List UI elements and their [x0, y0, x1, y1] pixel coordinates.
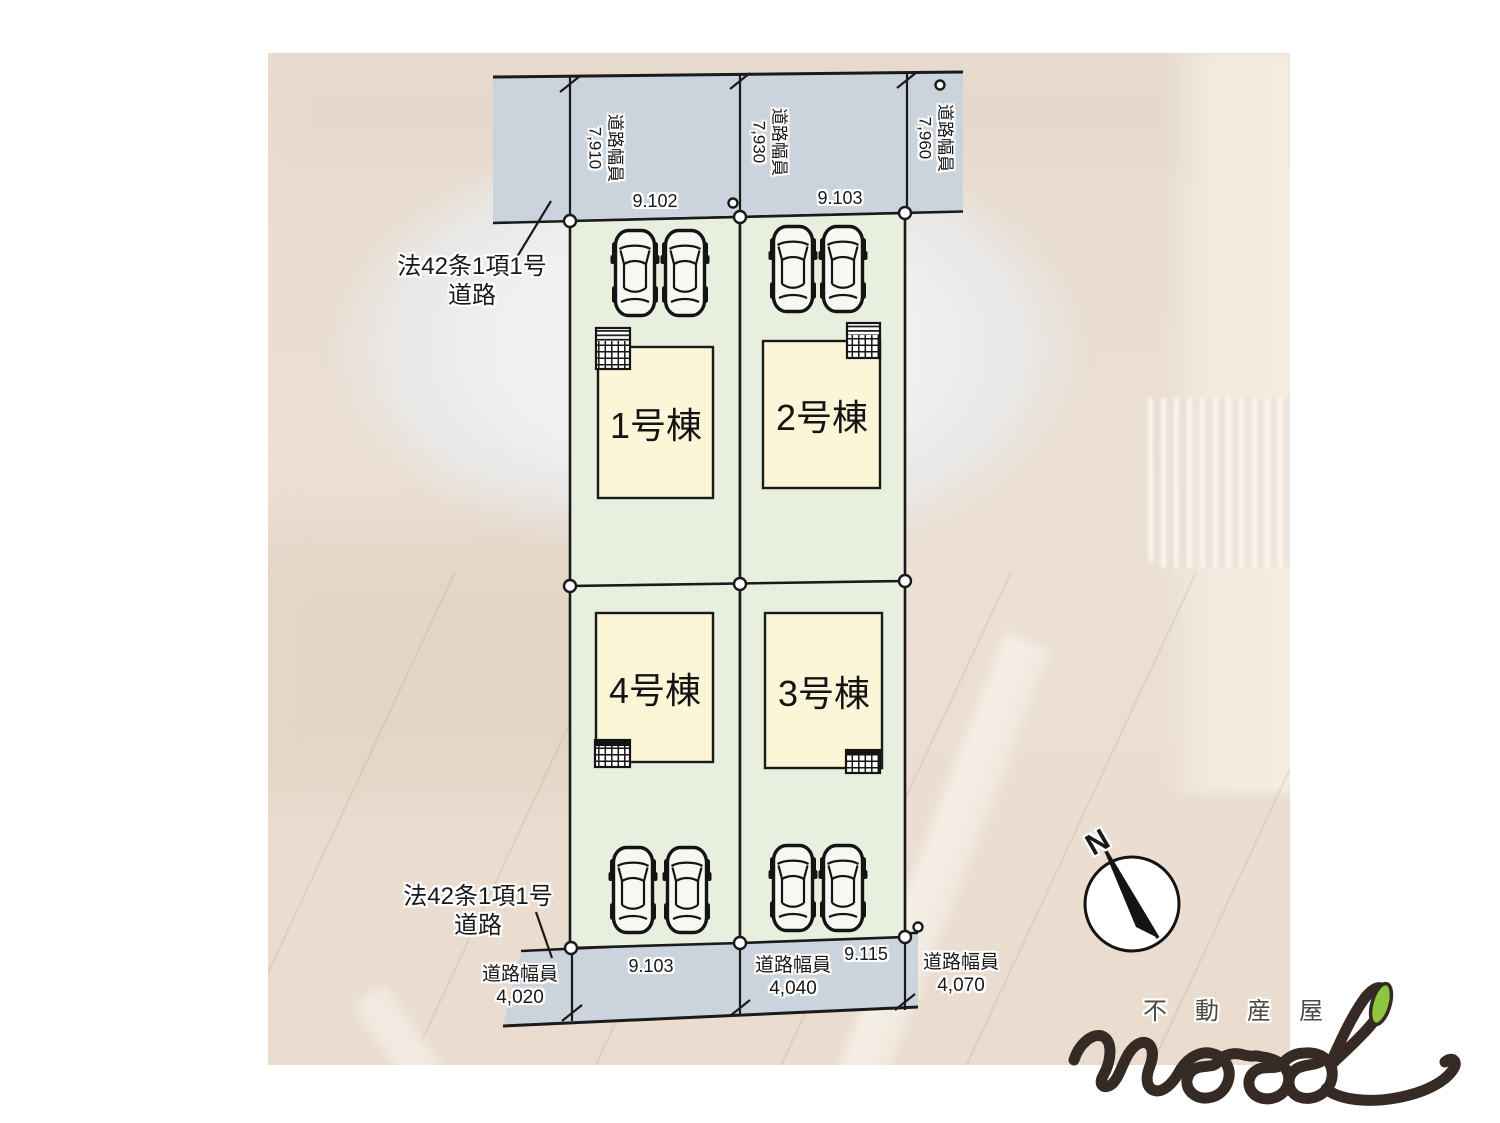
road-width-label-top-2: 道路幅員 7,930	[748, 108, 789, 176]
road-width-label-bottom-1: 道路幅員 4,020	[482, 964, 558, 1010]
car-icon	[609, 848, 658, 933]
porch-building-2	[847, 323, 880, 358]
nook-script-stroke	[1074, 1036, 1455, 1101]
road-width-label-top-3: 道路幅員 7,960	[914, 104, 955, 172]
car-icon	[663, 848, 712, 933]
road-law-label-bottom: 法42条1項1号 道路	[403, 883, 552, 941]
road-width-label-bottom-3: 道路幅員 4,070	[923, 952, 999, 998]
brand-tagline: 不動産屋	[1143, 991, 1351, 1026]
car-icon	[769, 846, 818, 931]
frontage-dim-bottom-left: 9.103	[628, 956, 673, 978]
car-icon	[611, 231, 660, 316]
building-label-4: 4号棟	[609, 662, 701, 714]
car-icon	[769, 227, 818, 312]
car-icon	[661, 231, 710, 316]
frontage-dim-top-left: 9.102	[632, 191, 677, 213]
frontage-dim-top-right: 9.103	[817, 188, 862, 210]
porch-building-4	[595, 740, 630, 767]
road-law-label-top: 法42条1項1号 道路	[397, 253, 546, 311]
car-icon	[819, 846, 868, 931]
building-label-1: 1号棟	[610, 397, 702, 449]
porch-building-1	[596, 328, 630, 369]
building-label-2: 2号棟	[776, 389, 868, 441]
building-label-3: 3号棟	[778, 665, 870, 717]
site-plan-page: 道路幅員 7,910 道路幅員 7,930 道路幅員 7,960 9.102 9…	[0, 0, 1500, 1123]
car-icon	[819, 227, 868, 312]
porch-building-3	[846, 750, 880, 773]
frontage-dim-bottom-right: 9.115	[844, 944, 888, 966]
road-width-label-bottom-2: 道路幅員 4,040	[755, 955, 831, 1001]
road-width-label-top-1: 道路幅員 7,910	[584, 114, 625, 182]
